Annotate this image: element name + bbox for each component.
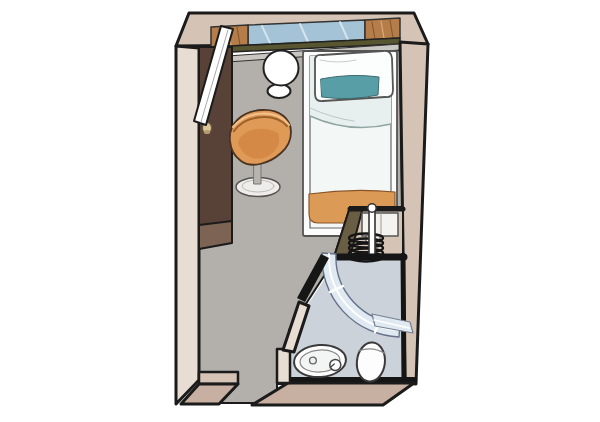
round-table [264, 51, 299, 86]
wardrobe-knob-shade [204, 130, 210, 134]
basin-faucet [329, 359, 341, 371]
wardrobe-side-face [199, 221, 232, 249]
cabin-floor-plan-image [0, 0, 600, 422]
unit-rod [369, 206, 375, 257]
bottom-left-wall-top [199, 372, 238, 384]
bathroom-left-wall [277, 349, 290, 383]
unit-rod-knob [368, 204, 376, 212]
floor-plan [176, 13, 428, 405]
basin-drain [309, 357, 316, 364]
teal-pillow [321, 75, 379, 98]
left-wall [176, 46, 199, 404]
bathroom-right-wall [403, 255, 404, 382]
floor-plan-canvas [0, 0, 600, 422]
